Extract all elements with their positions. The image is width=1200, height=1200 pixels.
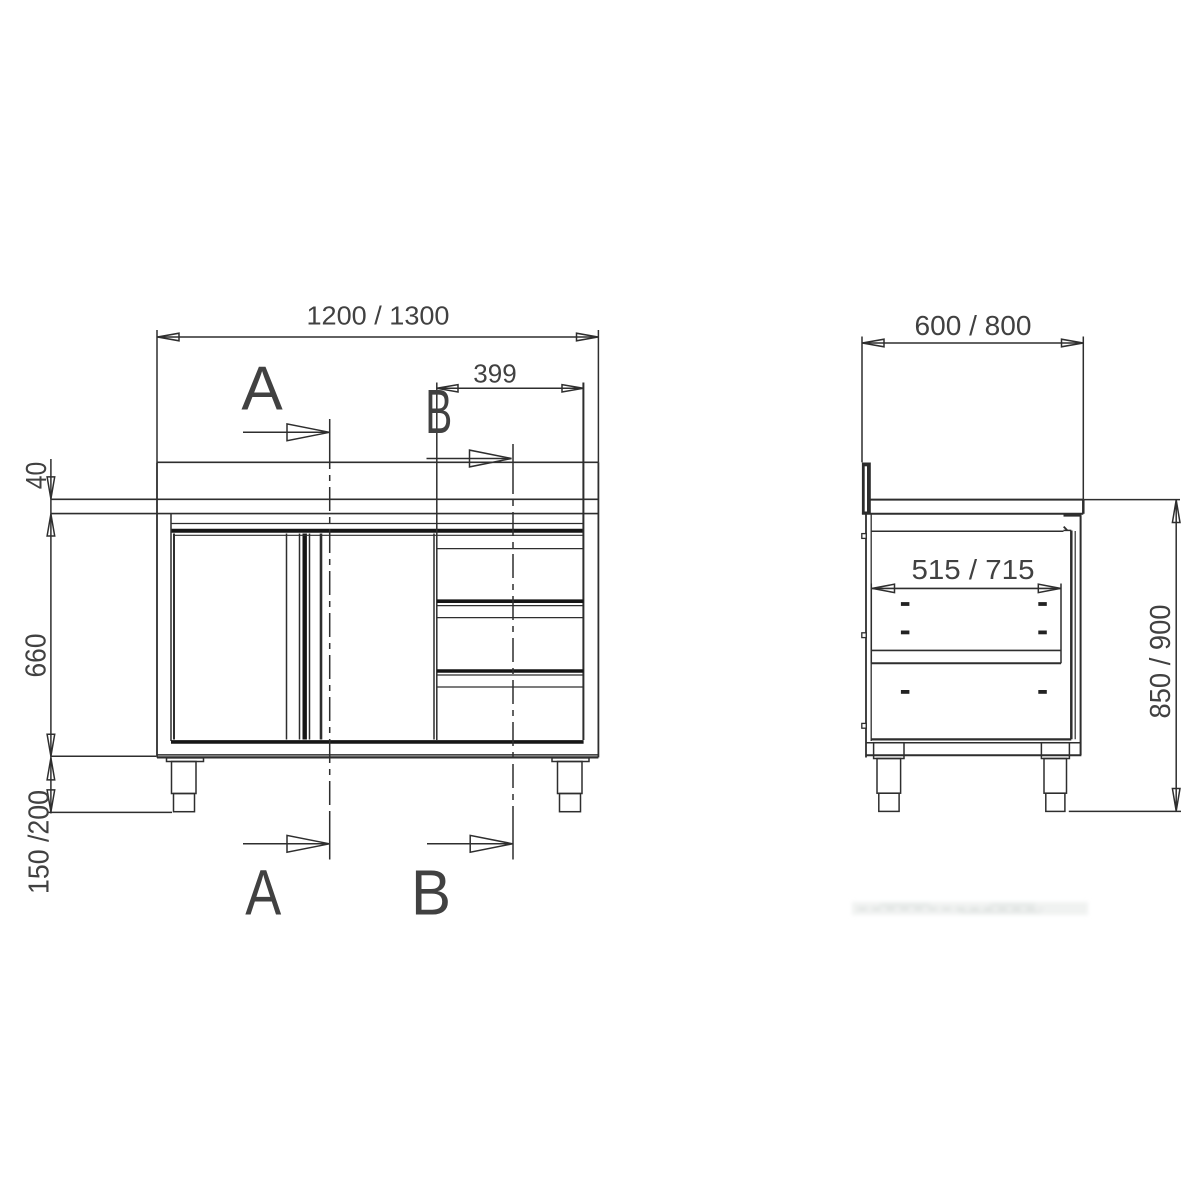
svg-text:150 /200: 150 /200 bbox=[24, 790, 56, 894]
svg-text:399: 399 bbox=[473, 359, 516, 389]
svg-text:660: 660 bbox=[21, 634, 53, 678]
svg-text:40: 40 bbox=[21, 462, 53, 490]
svg-text:A: A bbox=[241, 355, 283, 424]
svg-text:B: B bbox=[411, 857, 451, 929]
svg-text:600 / 800: 600 / 800 bbox=[915, 310, 1032, 341]
svg-text:B: B bbox=[425, 378, 452, 447]
svg-text:515 / 715: 515 / 715 bbox=[912, 554, 1035, 585]
svg-text:850 / 900: 850 / 900 bbox=[1145, 605, 1177, 719]
svg-text:1200 / 1300: 1200 / 1300 bbox=[307, 303, 450, 331]
svg-text:A: A bbox=[245, 857, 281, 929]
